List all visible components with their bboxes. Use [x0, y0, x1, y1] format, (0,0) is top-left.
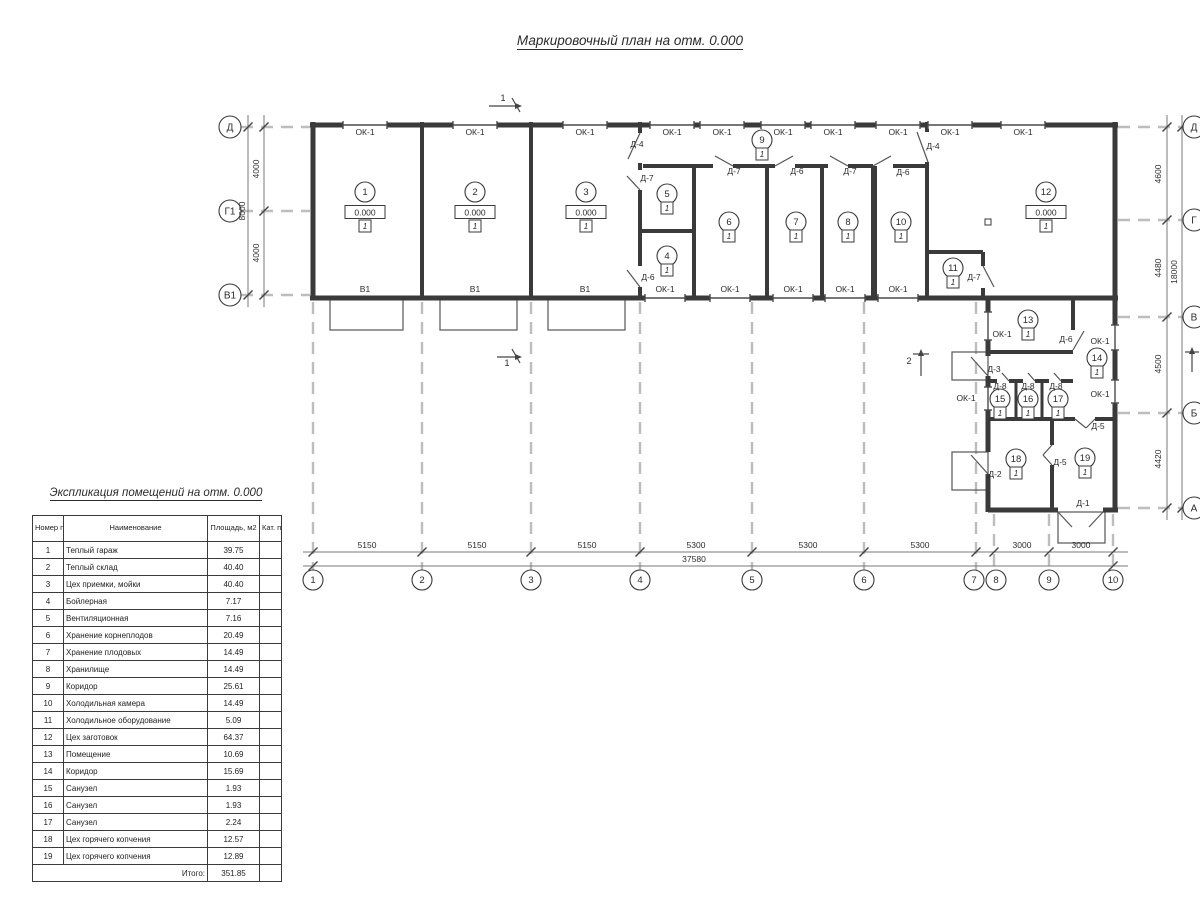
floor-type-mark: 1: [760, 150, 764, 159]
porch-outline: [952, 352, 988, 380]
plan-label: Д-7: [727, 166, 741, 176]
dimension-text: 4480: [1153, 258, 1163, 277]
table-cell: [260, 695, 282, 712]
porch-outline: [548, 299, 625, 330]
door-leaf: [1043, 455, 1052, 465]
table-cell: Хранилище: [64, 661, 208, 678]
table-cell: Номер помещ.: [33, 516, 64, 542]
table-row: 6Хранение корнеплодов20.49: [33, 627, 282, 644]
section-mark-label: 2: [906, 356, 911, 366]
table-cell: Санузел: [64, 797, 208, 814]
table-cell: 14.49: [208, 661, 260, 678]
floor-type-mark: 1: [665, 204, 669, 213]
plan-label: ОК-1: [720, 284, 739, 294]
table-cell: [260, 814, 282, 831]
plan-label: Д-8: [1021, 381, 1035, 391]
axis-label: В: [1191, 313, 1198, 324]
table-cell: 7.17: [208, 593, 260, 610]
axis-label: 2: [419, 575, 424, 586]
floor-type-mark: 1: [1056, 409, 1060, 418]
dimension-text: 8000: [237, 201, 247, 220]
section-mark-arrow: [918, 349, 924, 356]
room-number: 18: [1011, 454, 1022, 465]
table-cell: Помещение: [64, 746, 208, 763]
table-row: 9Коридор25.61: [33, 678, 282, 695]
table-cell: 12.57: [208, 831, 260, 848]
plan-label: Д-6: [896, 167, 910, 177]
explication-table-body: Номер помещ.НаименованиеПлощадь, м2Кат. …: [33, 516, 282, 882]
plan-label: Д-8: [1049, 381, 1063, 391]
table-cell: Холодильное оборудование: [64, 712, 208, 729]
plan-label: ОК-1: [1013, 127, 1032, 137]
table-cell: 16: [33, 797, 64, 814]
table-cell: 5: [33, 610, 64, 627]
axis-label: 3: [528, 575, 533, 586]
table-cell: 14: [33, 763, 64, 780]
table-cell: 2.24: [208, 814, 260, 831]
table-cell: 19: [33, 848, 64, 865]
table-cell: [260, 848, 282, 865]
explication-table: Номер помещ.НаименованиеПлощадь, м2Кат. …: [32, 515, 282, 882]
table-cell: 15.69: [208, 763, 260, 780]
table-cell: 13: [33, 746, 64, 763]
plan-label: Д-3: [987, 364, 1001, 374]
floor-type-mark: 1: [1095, 368, 1099, 377]
table-cell: Хранение плодовых: [64, 644, 208, 661]
table-cell: [260, 797, 282, 814]
plan-label: ОК-1: [662, 127, 681, 137]
table-cell: Теплый склад: [64, 559, 208, 576]
axis-label: Д: [227, 123, 234, 134]
table-cell: [260, 610, 282, 627]
door-leaf: [830, 156, 848, 166]
table-cell: 4: [33, 593, 64, 610]
plan-label: ОК-1: [823, 127, 842, 137]
table-cell: Санузел: [64, 814, 208, 831]
floor-type-mark: 1: [1083, 468, 1087, 477]
plan-label: ОК-1: [992, 329, 1011, 339]
axis-label: А: [1191, 504, 1198, 515]
section-mark-arrow: [515, 354, 522, 360]
room-number: 11: [948, 263, 958, 274]
floor-type-mark: 1: [727, 232, 731, 241]
room-number: 6: [726, 217, 731, 228]
explication-title: Экспликация помещений на отм. 0.000: [30, 487, 282, 499]
door-leaf: [1028, 373, 1035, 381]
column-marker: [985, 219, 991, 225]
table-row: 12Цех заготовок64.37: [33, 729, 282, 746]
table-row: 1Теплый гараж39.75: [33, 542, 282, 559]
plan-label: ОК-1: [888, 284, 907, 294]
floor-type-mark: 1: [846, 232, 850, 241]
plan-label: ОК-1: [940, 127, 959, 137]
drawing-sheet: Маркировочный план на отм. 0.000 10.0001…: [0, 0, 1200, 900]
plan-label: Д-6: [1059, 334, 1073, 344]
room-number: 8: [845, 217, 850, 228]
axis-label: Б: [1191, 409, 1198, 420]
table-row: 3Цех приемки, мойки40.40: [33, 576, 282, 593]
table-row: 8Хранилище14.49: [33, 661, 282, 678]
door-leaf: [983, 266, 994, 287]
dimension-text: 5150: [358, 540, 377, 550]
table-cell: 12: [33, 729, 64, 746]
table-cell: [260, 576, 282, 593]
table-cell: Цех горячего копчения: [64, 831, 208, 848]
table-cell: [260, 542, 282, 559]
table-row: 14Коридор15.69: [33, 763, 282, 780]
floor-type-mark: 1: [665, 266, 669, 275]
plan-label: ОК-1: [956, 393, 975, 403]
table-cell: [260, 831, 282, 848]
room-number: 9: [759, 135, 764, 146]
table-cell: Цех заготовок: [64, 729, 208, 746]
plan-label: ОК-1: [1090, 389, 1109, 399]
plan-label: ОК-1: [888, 127, 907, 137]
table-total-row: Итого:351.85: [33, 865, 282, 882]
dimension-text: 4500: [1153, 354, 1163, 373]
table-row: 7Хранение плодовых14.49: [33, 644, 282, 661]
explication-title-text: Экспликация помещений на отм. 0.000: [50, 487, 263, 501]
door-leaf: [775, 156, 793, 166]
door-leaf: [1043, 445, 1052, 455]
porch-outline: [952, 452, 988, 490]
elevation-value: 0.000: [575, 208, 597, 218]
table-cell: Вентиляционная: [64, 610, 208, 627]
door-leaf: [1075, 419, 1086, 428]
floor-type-mark: 1: [1026, 330, 1030, 339]
door-leaf: [1058, 512, 1072, 527]
table-row: 16Санузел1.93: [33, 797, 282, 814]
table-cell: 12.89: [208, 848, 260, 865]
table-cell: Хранение корнеплодов: [64, 627, 208, 644]
plan-label: В1: [580, 284, 591, 294]
table-cell: Наименование: [64, 516, 208, 542]
room-number: 10: [896, 217, 907, 228]
room-number: 1: [362, 187, 367, 198]
room-number: 2: [472, 187, 477, 198]
table-cell: Итого:: [33, 865, 208, 882]
dimension-text: 37580: [682, 554, 706, 564]
plan-label: Д-6: [790, 166, 804, 176]
room-number: 13: [1023, 315, 1034, 326]
plan-label: ОК-1: [712, 127, 731, 137]
table-cell: Санузел: [64, 780, 208, 797]
table-cell: [260, 712, 282, 729]
table-cell: [260, 729, 282, 746]
table-cell: [260, 593, 282, 610]
plan-label: ОК-1: [355, 127, 374, 137]
door-leaf: [1089, 512, 1103, 527]
table-row: 19Цех горячего копчения12.89: [33, 848, 282, 865]
table-cell: [260, 627, 282, 644]
room-number: 7: [793, 217, 798, 228]
plan-label: Д-7: [843, 166, 857, 176]
axis-label: В1: [224, 291, 237, 302]
table-cell: 18: [33, 831, 64, 848]
plan-label: Д-1: [1076, 498, 1090, 508]
axis-label: Г: [1191, 216, 1197, 227]
plan-label: ОК-1: [575, 127, 594, 137]
table-cell: 3: [33, 576, 64, 593]
room-number: 5: [664, 189, 669, 200]
door-leaf: [873, 156, 891, 166]
dimension-text: 4600: [1153, 164, 1163, 183]
dimension-text: 5150: [468, 540, 487, 550]
table-row: 17Санузел2.24: [33, 814, 282, 831]
table-cell: 14.49: [208, 695, 260, 712]
table-cell: 8: [33, 661, 64, 678]
floor-type-mark: 1: [1014, 469, 1018, 478]
door-leaf: [627, 270, 640, 287]
room-number: 17: [1053, 394, 1064, 405]
table-cell: [260, 644, 282, 661]
table-cell: [260, 661, 282, 678]
floor-type-mark: 1: [951, 278, 955, 287]
room-number: 16: [1023, 394, 1034, 405]
table-cell: 64.37: [208, 729, 260, 746]
plan-label: В1: [470, 284, 481, 294]
dimension-text: 4000: [251, 159, 261, 178]
axis-label: 6: [861, 575, 866, 586]
table-row: 10Холодильная камера14.49: [33, 695, 282, 712]
table-row: 5Вентиляционная7.16: [33, 610, 282, 627]
plan-label: Д-2: [988, 469, 1002, 479]
floor-type-mark: 1: [794, 232, 798, 241]
table-row: 11Холодильное оборудование5.09: [33, 712, 282, 729]
section-mark-arrow: [515, 103, 522, 109]
floor-type-mark: 1: [363, 222, 367, 231]
elevation-value: 0.000: [1035, 208, 1057, 218]
dimension-text: 5150: [578, 540, 597, 550]
table-cell: Цех горячего копчения: [64, 848, 208, 865]
section-mark-arrow: [1189, 347, 1195, 354]
table-cell: [260, 780, 282, 797]
axis-label: 10: [1108, 575, 1119, 586]
door-leaf: [1054, 373, 1061, 381]
door-leaf: [1073, 331, 1084, 350]
elevation-value: 0.000: [464, 208, 486, 218]
axis-label: 1: [310, 575, 315, 586]
dimension-text: 3000: [1072, 540, 1091, 550]
table-cell: 7: [33, 644, 64, 661]
door-leaf: [1002, 373, 1009, 381]
table-cell: Холодильная камера: [64, 695, 208, 712]
floor-type-mark: 1: [899, 232, 903, 241]
table-cell: 6: [33, 627, 64, 644]
axis-label: 5: [749, 575, 754, 586]
dimension-text: 18000: [1169, 260, 1179, 284]
table-cell: 7.16: [208, 610, 260, 627]
table-cell: [260, 865, 282, 882]
floor-type-mark: 1: [1026, 409, 1030, 418]
table-cell: 39.75: [208, 542, 260, 559]
plan-label: ОК-1: [835, 284, 854, 294]
table-cell: 1.93: [208, 780, 260, 797]
elevation-value: 0.000: [354, 208, 376, 218]
door-leaf: [971, 455, 988, 474]
table-cell: 40.40: [208, 576, 260, 593]
table-row: 15Санузел1.93: [33, 780, 282, 797]
door-leaf: [715, 156, 733, 166]
table-cell: 9: [33, 678, 64, 695]
table-cell: [260, 678, 282, 695]
floor-type-mark: 1: [998, 409, 1002, 418]
table-cell: Коридор: [64, 763, 208, 780]
room-number: 19: [1080, 453, 1091, 464]
table-row: 4Бойлерная7.17: [33, 593, 282, 610]
porch-outline: [330, 299, 403, 330]
table-cell: 1: [33, 542, 64, 559]
plan-label: Д-7: [967, 272, 981, 282]
section-mark-label: 1: [500, 93, 505, 103]
table-header-row: Номер помещ.НаименованиеПлощадь, м2Кат. …: [33, 516, 282, 542]
plan-label: Д-5: [1053, 457, 1067, 467]
table-cell: 17: [33, 814, 64, 831]
plan-label: ОК-1: [783, 284, 802, 294]
plan-label: Д-8: [993, 381, 1007, 391]
table-cell: 10.69: [208, 746, 260, 763]
table-cell: 2: [33, 559, 64, 576]
plan-label: Д-6: [641, 272, 655, 282]
table-cell: 40.40: [208, 559, 260, 576]
table-cell: Кат. пом.: [260, 516, 282, 542]
dimension-text: 5300: [911, 540, 930, 550]
table-cell: [260, 746, 282, 763]
door-leaf: [971, 357, 988, 376]
table-cell: 5.09: [208, 712, 260, 729]
room-number: 3: [583, 187, 588, 198]
plan-label: ОК-1: [773, 127, 792, 137]
porch-outline: [440, 299, 517, 330]
table-row: 13Помещение10.69: [33, 746, 282, 763]
floor-type-mark: 1: [473, 222, 477, 231]
table-cell: [260, 559, 282, 576]
table-row: 18Цех горячего копчения12.57: [33, 831, 282, 848]
table-cell: 25.61: [208, 678, 260, 695]
room-number: 4: [664, 251, 669, 262]
table-cell: 15: [33, 780, 64, 797]
table-cell: 20.49: [208, 627, 260, 644]
table-cell: Теплый гараж: [64, 542, 208, 559]
axis-label: 4: [637, 575, 642, 586]
dimension-text: 5300: [687, 540, 706, 550]
table-cell: Бойлерная: [64, 593, 208, 610]
door-leaf: [627, 176, 640, 190]
room-number: 14: [1092, 353, 1103, 364]
table-row: 2Теплый склад40.40: [33, 559, 282, 576]
axis-label: Г1: [225, 207, 236, 218]
table-cell: 14.49: [208, 644, 260, 661]
table-cell: 1.93: [208, 797, 260, 814]
plan-label: ОК-1: [1090, 336, 1109, 346]
plan-label: ОК-1: [655, 284, 674, 294]
plan-label: Д-4: [926, 141, 940, 151]
plan-label: Д-5: [1091, 421, 1105, 431]
room-number: 12: [1041, 187, 1052, 198]
table-cell: 351.85: [208, 865, 260, 882]
dimension-text: 4420: [1153, 449, 1163, 468]
table-cell: [260, 763, 282, 780]
table-cell: Коридор: [64, 678, 208, 695]
axis-label: 7: [971, 575, 976, 586]
table-cell: Цех приемки, мойки: [64, 576, 208, 593]
floor-type-mark: 1: [584, 222, 588, 231]
axis-label: 9: [1046, 575, 1051, 586]
section-mark-label: 1: [504, 358, 509, 368]
table-cell: Площадь, м2: [208, 516, 260, 542]
room-number: 15: [995, 394, 1006, 405]
floor-type-mark: 1: [1044, 222, 1048, 231]
axis-label: 8: [993, 575, 998, 586]
table-cell: 10: [33, 695, 64, 712]
axis-label: Д: [1191, 123, 1198, 134]
dimension-text: 3000: [1013, 540, 1032, 550]
plan-label: В1: [360, 284, 371, 294]
dimension-text: 4000: [251, 243, 261, 262]
plan-label: Д-7: [640, 173, 654, 183]
table-cell: 11: [33, 712, 64, 729]
plan-label: Д-4: [630, 139, 644, 149]
plan-label: ОК-1: [465, 127, 484, 137]
dimension-text: 5300: [799, 540, 818, 550]
